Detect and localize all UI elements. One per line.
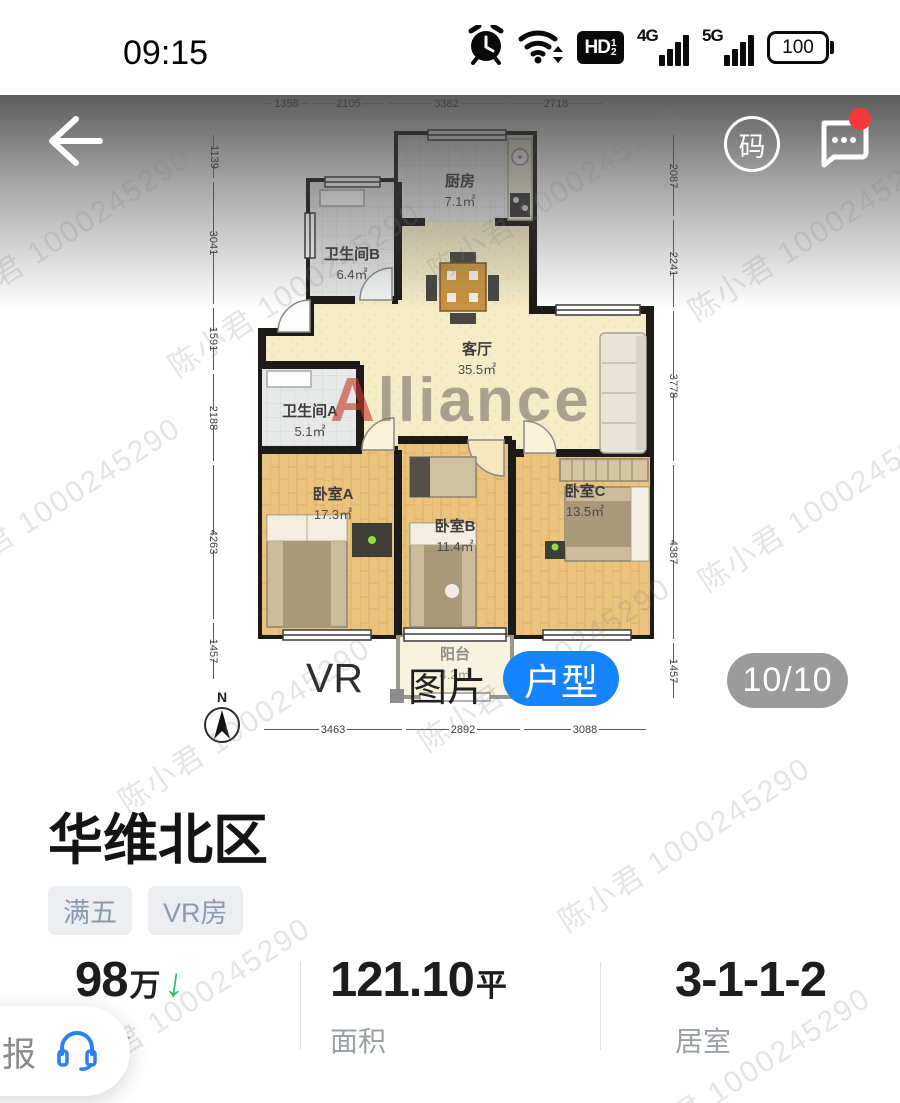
hd-volte-icon: HD 12: [577, 31, 624, 64]
tab-floorplan-active[interactable]: 户型: [503, 651, 619, 706]
room-label-kitchen: 厨房7.1㎡: [444, 170, 475, 210]
dimensions-right: 2087 2241 3778 4387 1457: [666, 133, 681, 700]
stat-divider: [300, 962, 301, 1050]
tag-list: 满五 VR房: [48, 886, 243, 935]
dimensions-bottom: 3463 2892 3088: [262, 723, 648, 736]
dimensions-top: 1358 2105 3382 2718: [262, 97, 605, 110]
qr-code-glyph: 码: [739, 125, 766, 164]
stat-area: 121.10 平 面积: [330, 952, 507, 1060]
tag-man-wu: 满五: [48, 886, 132, 935]
battery-level: 100: [767, 31, 829, 64]
listing-title: 华维北区: [48, 795, 268, 875]
floorplan-viewer: 码 厨房7.1㎡ 卫生间B6.4㎡ 客厅35.5㎡ 卫生间A5.1㎡ 卧室A17…: [0, 95, 900, 760]
notification-badge: [849, 108, 871, 130]
qr-code-button[interactable]: 码: [724, 116, 780, 172]
back-button[interactable]: [42, 111, 106, 171]
image-counter: 10/10: [727, 653, 848, 708]
watermark-text: 陈小君 1000245290: [548, 744, 818, 941]
status-bar: 09:15 HD 12 4G: [0, 0, 900, 95]
dimensions-left: 1139 3041 1591 2188 4263 1457: [206, 133, 221, 681]
headphones-icon: [54, 1026, 100, 1077]
room-label-bedroom-c: 卧室C13.5㎡: [565, 480, 606, 520]
signal-4g-icon: 4G: [637, 28, 689, 68]
tab-photos[interactable]: 图片: [408, 657, 486, 713]
clock-time: 09:15: [123, 34, 208, 73]
price-down-icon: ↓: [161, 961, 187, 1006]
alliance-watermark: Alliance: [330, 365, 592, 436]
compass-north-label: N: [214, 689, 230, 705]
tab-vr[interactable]: VR: [306, 655, 363, 702]
stat-layout: 3-1-1-2 居室: [675, 952, 826, 1060]
room-label-bathroom-b: 卫生间B6.4㎡: [324, 243, 380, 283]
tag-vr-house: VR房: [148, 886, 243, 935]
signal-5g-icon: 5G: [702, 28, 754, 68]
room-label-bedroom-b: 卧室B11.4㎡: [435, 515, 476, 555]
wifi-icon: [518, 26, 564, 69]
stat-divider: [600, 962, 601, 1050]
broadcast-label: 报: [2, 1027, 36, 1076]
room-label-bedroom-a: 卧室A17.3㎡: [313, 483, 354, 523]
audio-broadcast-button[interactable]: 报: [0, 1006, 130, 1096]
alarm-icon: [467, 25, 505, 70]
battery-icon: 100: [767, 31, 834, 64]
